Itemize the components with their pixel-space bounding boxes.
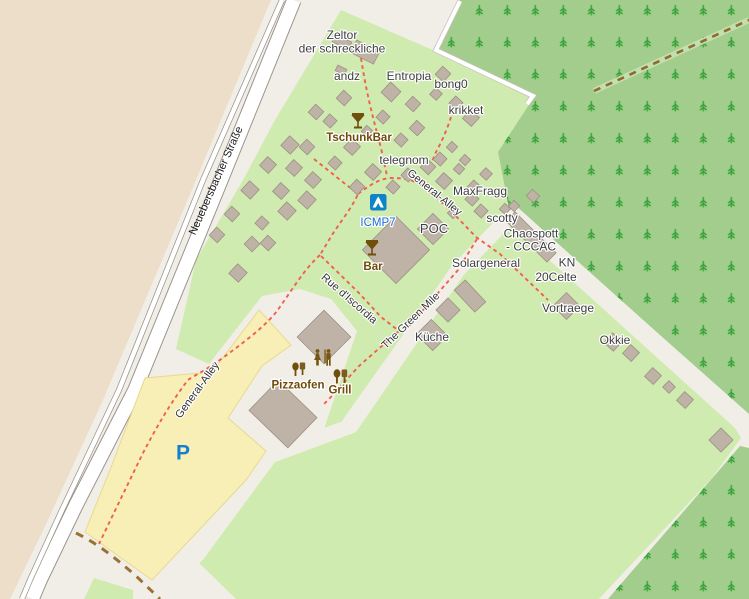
svg-text:der schreckliche: der schreckliche [299, 42, 386, 56]
svg-text:Pizzaofen: Pizzaofen [271, 380, 324, 392]
svg-text:P: P [176, 442, 190, 465]
svg-text:Vortraege: Vortraege [542, 301, 594, 315]
svg-text:Küche: Küche [415, 330, 449, 344]
svg-text:KN: KN [559, 256, 576, 270]
svg-text:telegnom: telegnom [379, 153, 428, 167]
svg-text:MaxFragg: MaxFragg [453, 184, 507, 198]
svg-text:bong0: bong0 [434, 77, 468, 91]
svg-text:20Celte: 20Celte [535, 270, 577, 284]
svg-text:ICMP7: ICMP7 [360, 217, 395, 229]
svg-text:Zeltor: Zeltor [327, 28, 358, 42]
svg-text:Bar: Bar [363, 261, 383, 273]
svg-text:scotty: scotty [486, 211, 517, 225]
svg-text:TschunkBar: TschunkBar [326, 132, 392, 144]
svg-text:Solargeneral: Solargeneral [452, 256, 520, 270]
svg-text:Entropia: Entropia [387, 69, 432, 83]
svg-text:andz: andz [334, 69, 360, 83]
svg-text:POC: POC [420, 221, 448, 236]
svg-text:Okkie: Okkie [600, 333, 631, 347]
svg-text:Grill: Grill [328, 385, 351, 397]
svg-text:krikket: krikket [449, 103, 484, 117]
svg-text:- CCCAC: - CCCAC [506, 240, 556, 254]
svg-text:Chaospott: Chaospott [504, 227, 559, 241]
